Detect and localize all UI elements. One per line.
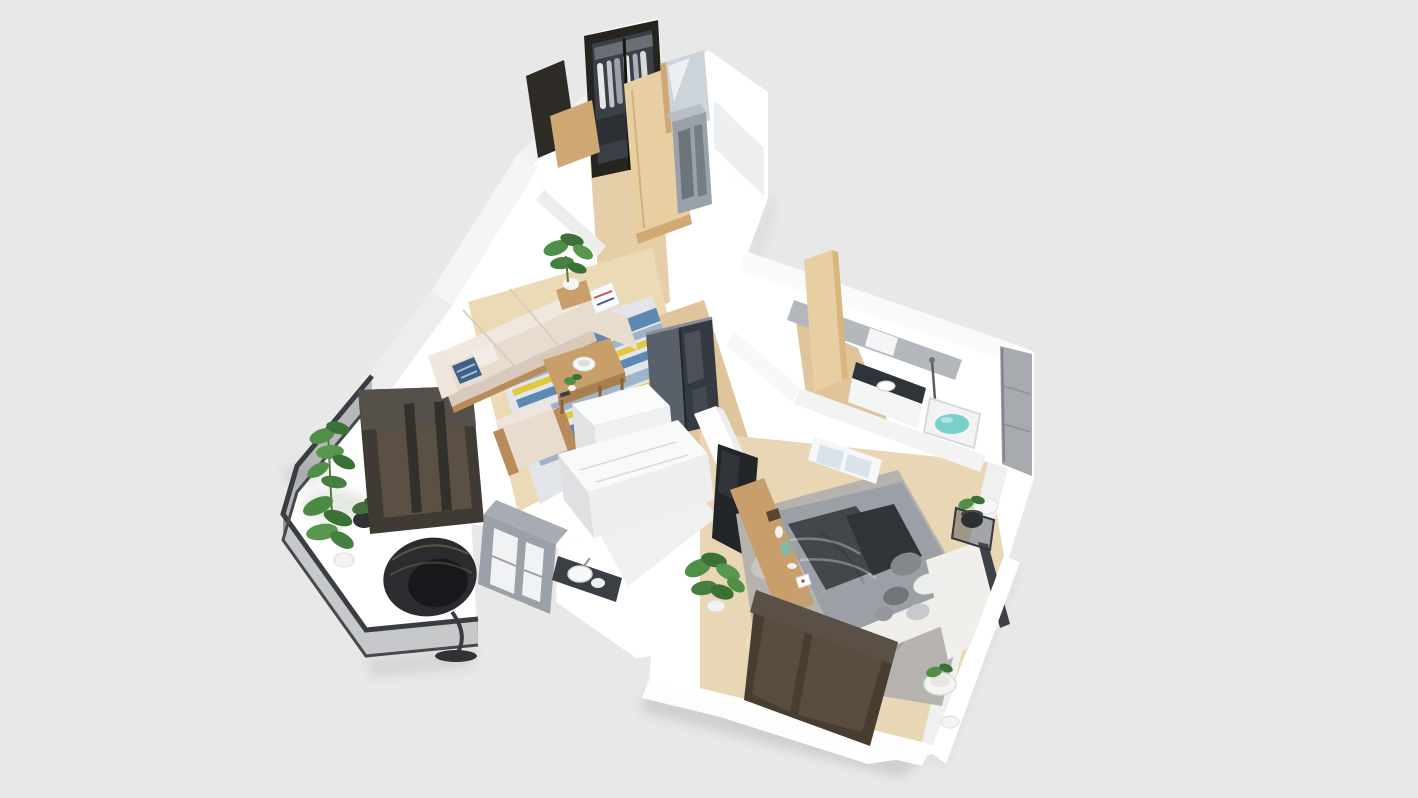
living-room-window [358,386,484,534]
washbasin [568,566,592,582]
apartment-3d-render [0,0,1418,798]
floorplan-render-canvas [0,0,1418,798]
bathroom-gray-panel [1000,346,1032,476]
teal-vase [781,541,791,555]
white-vase [775,526,783,538]
